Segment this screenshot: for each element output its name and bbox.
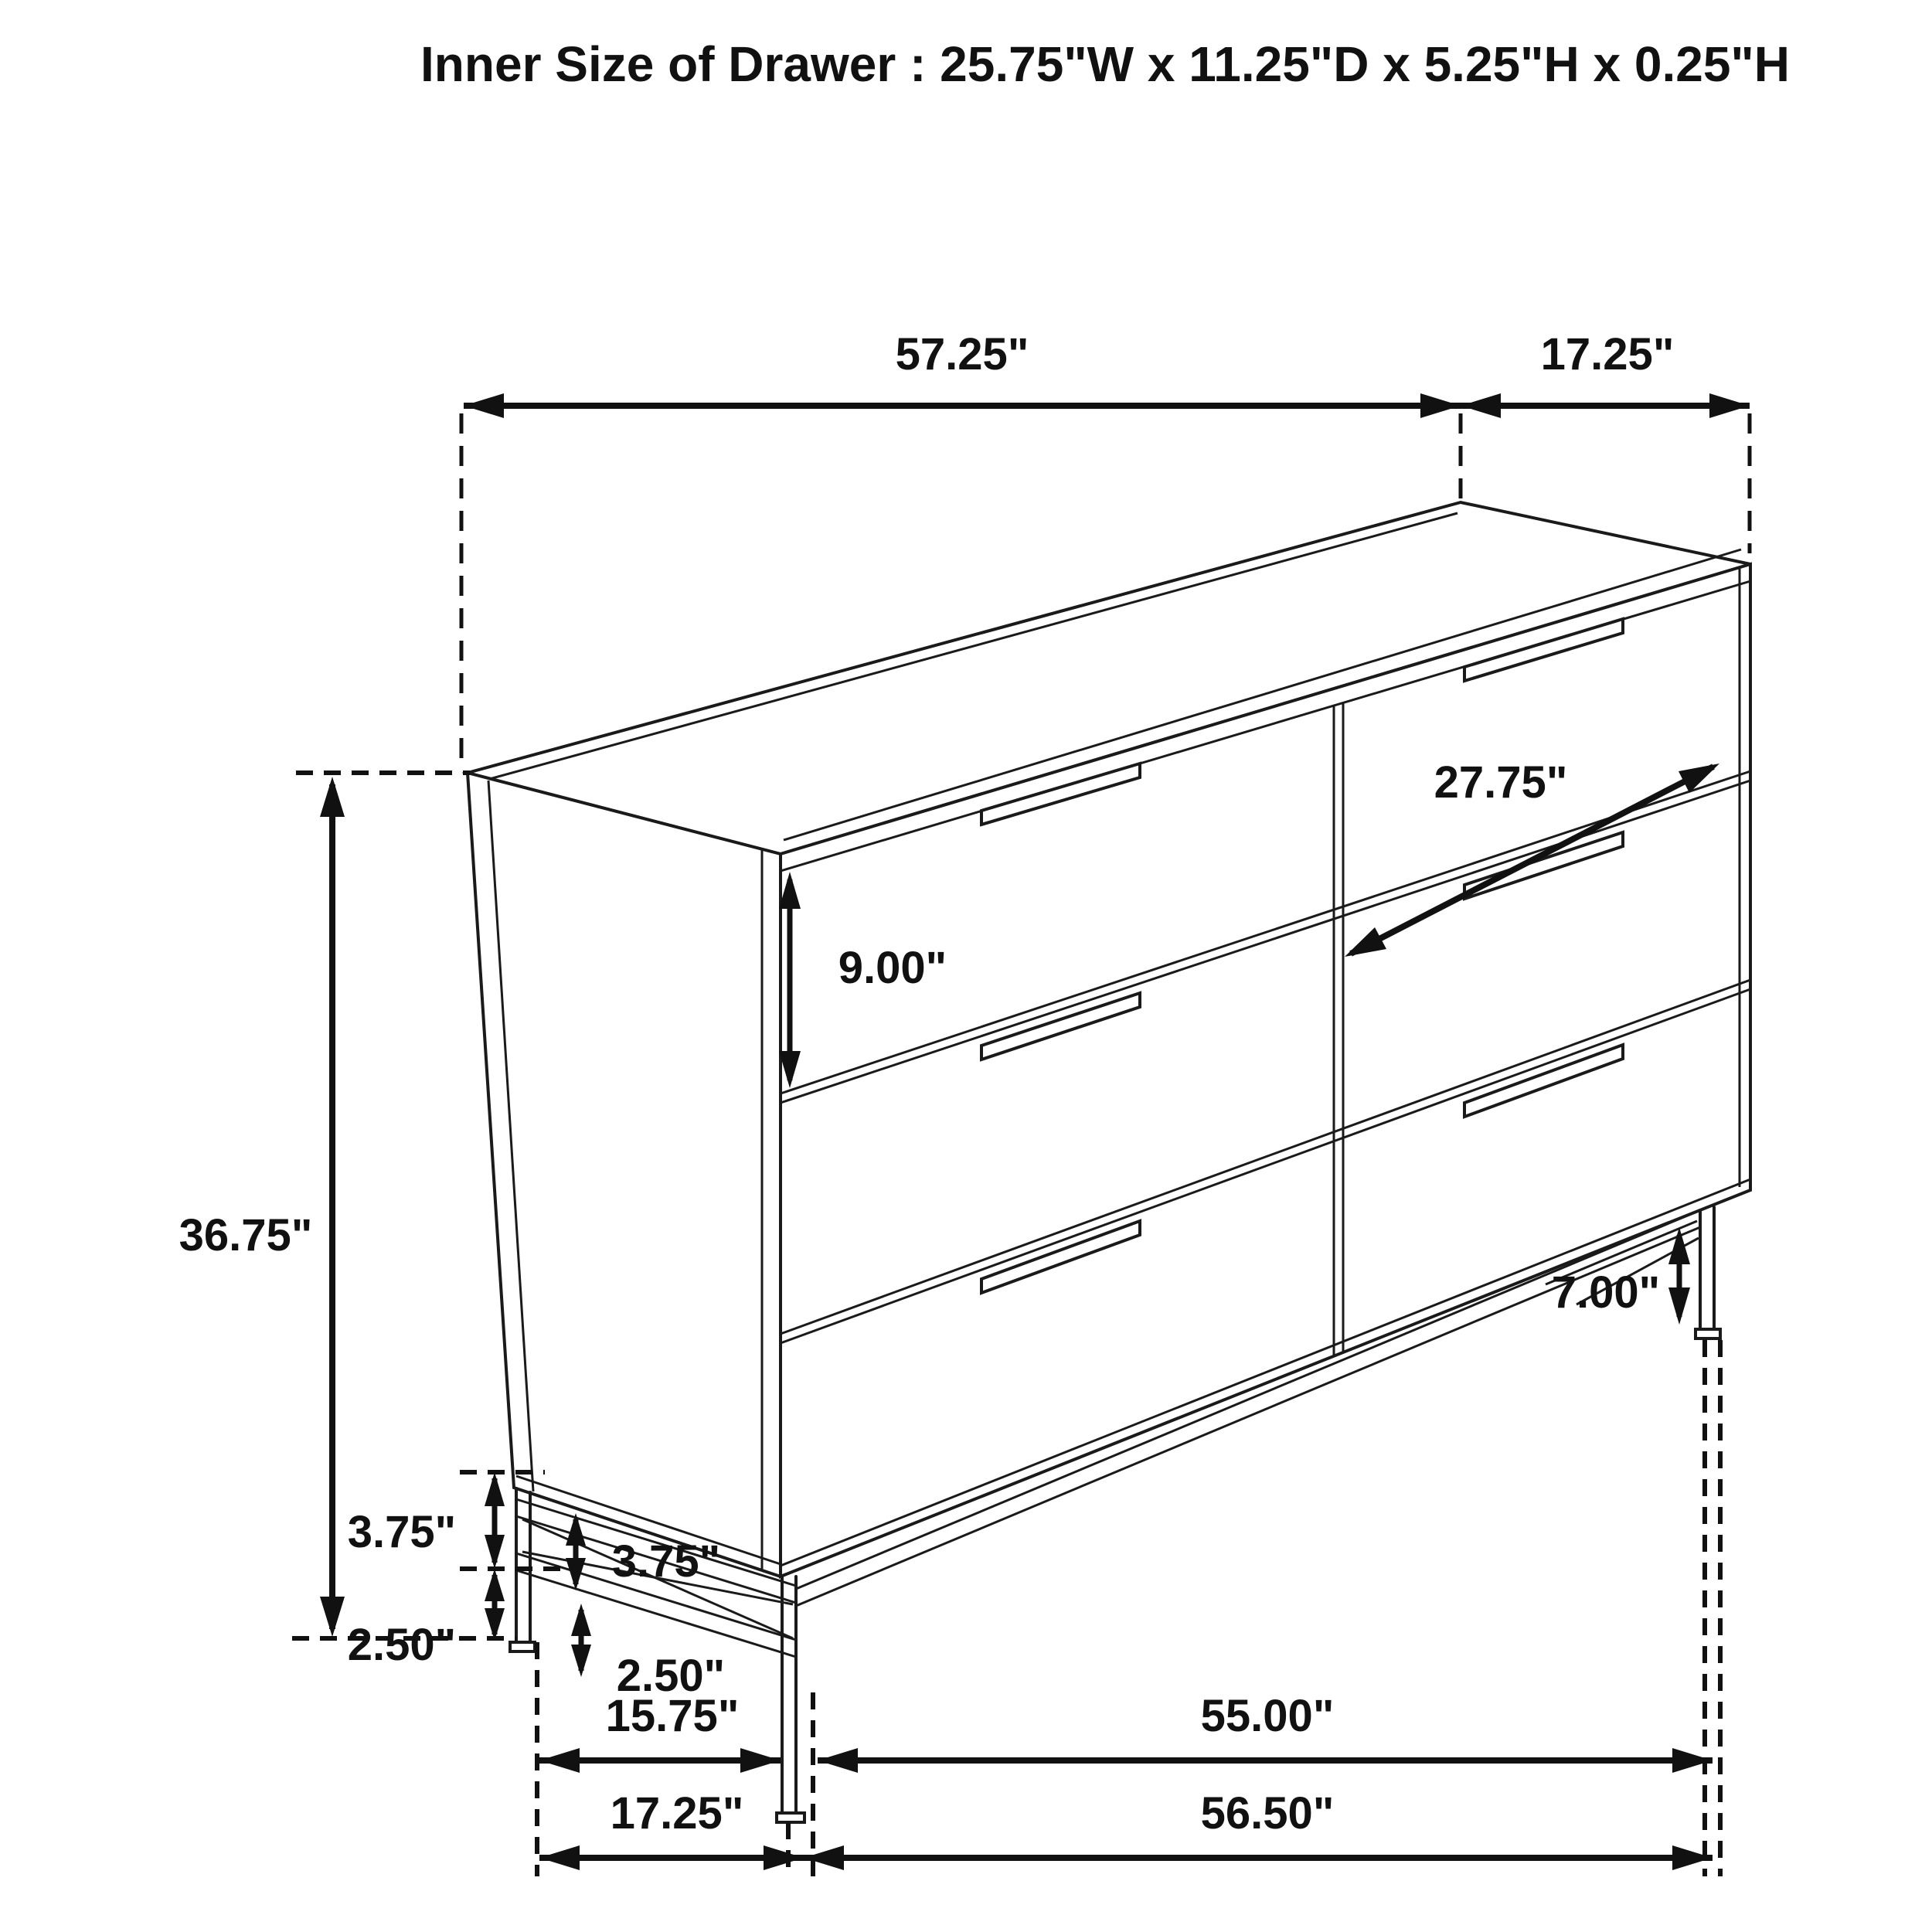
dimension-base-lower-outer: 2.50" [348,1569,505,1670]
dim-base-upper-inner-label: 3.75" [612,1536,720,1587]
front-left-leg [777,1577,804,1822]
dim-base-lower-outer-label: 2.50" [348,1620,456,1670]
dim-floor-right-inner-label: 55.00" [1201,1691,1335,1741]
left-side-panel [468,773,781,1577]
diagram-canvas: Inner Size of Drawer : 25.75"W x 11.25"D… [0,0,1932,1932]
dim-drawer-diagonal-label: 27.75" [1434,757,1568,808]
dim-top-depth-label: 17.25" [1541,329,1675,379]
dimension-base-lower-inner: 2.50" [571,1604,725,1701]
dim-overall-height-label: 36.75" [179,1210,313,1260]
diagram-title: Inner Size of Drawer : 25.75"W x 11.25"D… [420,36,1790,92]
dim-floor-left-outer-label: 17.25" [611,1788,744,1838]
dim-leg-height-label: 7.00" [1552,1267,1660,1318]
dresser-dimension-diagram: Inner Size of Drawer : 25.75"W x 11.25"D… [0,0,1932,1932]
dim-floor-right-outer-label: 56.50" [1201,1788,1335,1838]
dim-top-width-label: 57.25" [896,329,1029,379]
dimension-floor-row2: 17.25" 56.50" [539,1788,1713,1870]
front-right-leg [1696,1207,1720,1338]
dim-floor-left-inner-label: 15.75" [606,1691,740,1741]
dresser-drawing [468,502,1750,1822]
dim-base-upper-outer-label: 3.75" [348,1507,456,1557]
dim-drawer-height-label: 9.00" [838,943,947,993]
